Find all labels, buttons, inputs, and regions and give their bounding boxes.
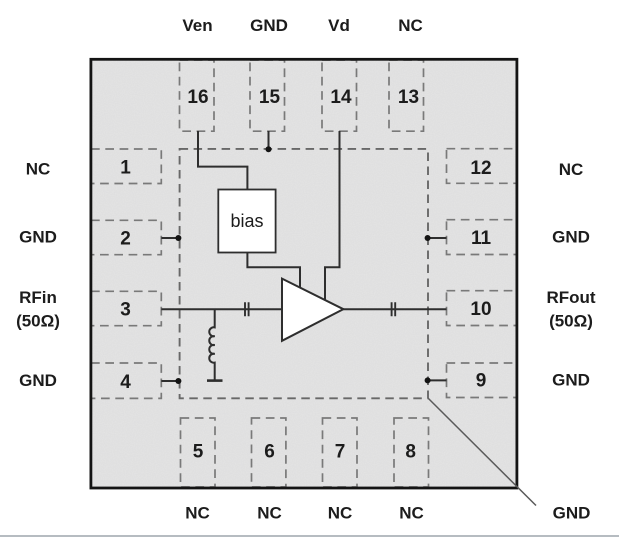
- svg-text:Vd: Vd: [328, 16, 350, 35]
- svg-text:5: 5: [193, 442, 204, 463]
- svg-text:16: 16: [187, 87, 208, 108]
- svg-text:3: 3: [120, 300, 131, 321]
- svg-text:GND: GND: [553, 504, 591, 523]
- svg-text:(50Ω): (50Ω): [16, 311, 60, 330]
- svg-text:9: 9: [476, 371, 487, 392]
- svg-text:11: 11: [471, 228, 492, 249]
- svg-text:4: 4: [120, 372, 131, 393]
- svg-text:bias: bias: [230, 211, 263, 231]
- svg-text:NC: NC: [26, 160, 51, 179]
- svg-text:8: 8: [405, 442, 416, 463]
- svg-text:7: 7: [335, 442, 346, 463]
- svg-text:NC: NC: [559, 160, 584, 179]
- svg-text:10: 10: [470, 299, 491, 320]
- svg-text:NC: NC: [257, 504, 282, 523]
- svg-text:13: 13: [398, 87, 419, 108]
- svg-text:NC: NC: [185, 504, 210, 523]
- svg-text:Ven: Ven: [182, 16, 212, 35]
- svg-text:6: 6: [264, 442, 275, 463]
- svg-text:GND: GND: [19, 371, 57, 390]
- svg-text:NC: NC: [398, 16, 423, 35]
- svg-text:(50Ω): (50Ω): [549, 311, 593, 330]
- svg-text:NC: NC: [399, 504, 424, 523]
- svg-text:GND: GND: [250, 16, 288, 35]
- svg-text:14: 14: [330, 87, 352, 108]
- svg-text:1: 1: [120, 157, 131, 178]
- svg-text:RFin: RFin: [19, 288, 57, 307]
- svg-text:NC: NC: [328, 504, 353, 523]
- svg-text:GND: GND: [552, 371, 590, 390]
- svg-text:RFout: RFout: [546, 288, 595, 307]
- svg-text:GND: GND: [552, 228, 590, 247]
- svg-text:GND: GND: [19, 228, 57, 247]
- svg-text:12: 12: [470, 158, 491, 179]
- svg-text:2: 2: [120, 229, 131, 250]
- svg-text:15: 15: [259, 87, 281, 108]
